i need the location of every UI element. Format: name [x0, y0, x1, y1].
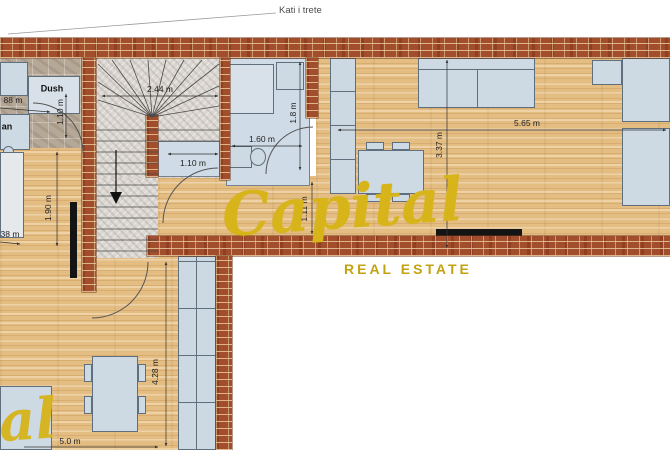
title-leader-line: [8, 13, 276, 34]
chair: [392, 194, 410, 202]
bed-lower: [622, 128, 670, 206]
dimension-partial-mid: 38 m: [1, 230, 20, 239]
bathroom1-cabinet: [0, 62, 28, 96]
dining-table-living: [358, 150, 424, 194]
sofa-cushion-line: [477, 69, 478, 108]
toilet-bowl: [250, 148, 266, 166]
dining-table-lower: [92, 356, 138, 432]
wall-top: [0, 38, 670, 58]
chair: [392, 142, 410, 150]
wall-bottom: [147, 236, 670, 256]
dimension-passage: 1.11 m: [300, 196, 309, 221]
dimension-lower-room: 4.28 m: [151, 359, 160, 385]
floor-plan: Dush an: [0, 0, 670, 450]
chair: [84, 396, 92, 414]
dimension-stair-landing: 1.10 m: [180, 159, 206, 168]
dimension-bath2-width: 1.60 m: [249, 135, 275, 144]
dimension-partial-top: 88 m: [4, 96, 23, 105]
dimension-stair-width: 2.44 m: [147, 85, 173, 94]
dimension-bath2-depth: 1.8 m: [289, 102, 298, 123]
chair: [366, 194, 384, 202]
chair: [84, 364, 92, 382]
wall-stair-left: [82, 58, 96, 292]
dimension-partial-bottom: 5.0 m: [59, 437, 80, 446]
dimension-living-width: 5.65 m: [514, 119, 540, 128]
couch: [0, 386, 52, 450]
bed-upper: [622, 58, 670, 122]
wall-stair-right: [220, 58, 230, 180]
washing-machine: [276, 62, 304, 90]
shower-label: Dush: [41, 85, 64, 94]
nightstand: [592, 60, 622, 85]
sink-label-partial: an: [2, 123, 13, 132]
wall-bath2-right: [306, 58, 318, 118]
chair: [138, 396, 146, 414]
chair: [366, 142, 384, 150]
dimension-bath1-depth: 1.10 m: [56, 99, 65, 125]
kitchen-cabinets-living: [330, 58, 356, 194]
watermark-tagline: REAL ESTATE: [344, 262, 472, 276]
radiator-bar: [70, 202, 77, 278]
shower-tray-2: [228, 64, 274, 114]
floor-title: Kati i trete: [279, 5, 322, 16]
sink-counter: [0, 114, 30, 150]
chair: [138, 364, 146, 382]
dimension-left-room: 1.90 m: [44, 195, 53, 221]
toilet-tank: [228, 146, 252, 168]
wardrobe: [0, 152, 24, 238]
wall-stair-stub: [146, 115, 158, 177]
dimension-living-depth: 3.37 m: [435, 132, 444, 158]
wall-lower-right: [216, 256, 232, 450]
kitchen-cabinets-lower: [178, 256, 216, 450]
